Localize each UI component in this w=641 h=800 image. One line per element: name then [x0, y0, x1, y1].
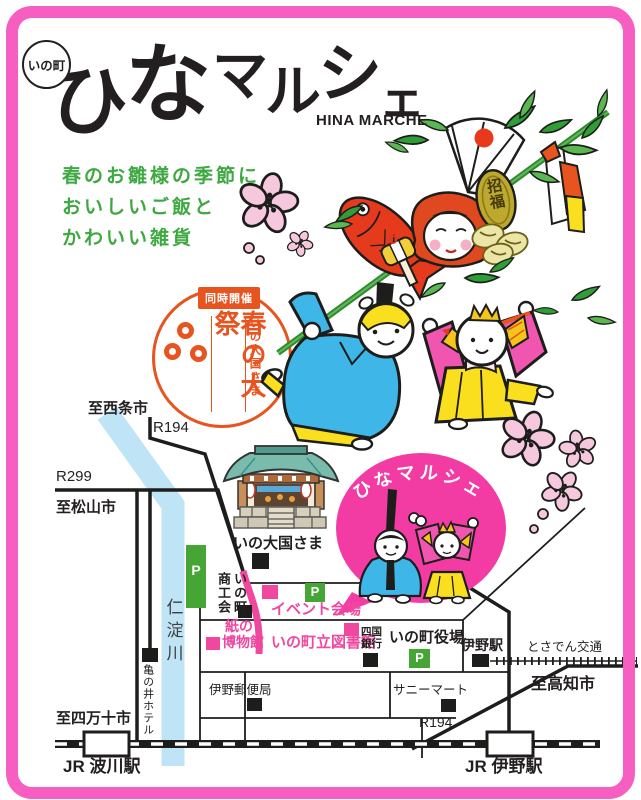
hakawa-station-box	[84, 732, 129, 756]
postoffice-marker	[247, 698, 262, 711]
title-char: マ	[212, 48, 265, 104]
paper-streamers-icon	[541, 142, 585, 232]
label-route299: R299	[56, 468, 92, 485]
label-to-shimanto: 至四万十市	[56, 710, 131, 727]
label-niyodo-river: 仁淀川	[163, 598, 183, 667]
label-bank: 四国 銀行	[361, 626, 382, 650]
poster-subtitle: HINA MARCHE	[316, 112, 428, 129]
parking-event-letter: P	[305, 585, 325, 600]
tagline: 春のお雛様の季節に おいしいご飯と かわいい雑貨	[62, 162, 260, 254]
label-town-hall: いの町役場	[389, 629, 464, 646]
sakura-flowers-right	[490, 402, 601, 533]
title-char: シ	[318, 42, 379, 106]
label-bank-line2: 銀行	[361, 638, 382, 650]
parking-townhall-letter: P	[409, 651, 430, 666]
label-sunny-mart: サニーマート	[393, 683, 468, 697]
tagline-line: かわいい雑貨	[62, 224, 260, 255]
label-to-kochi: 至高知市	[531, 676, 595, 694]
label-jr-hakawa: JR 波川駅	[63, 757, 140, 777]
hina-marche-flyer: { "colors": { "accent_orange": "#e8541f"…	[0, 0, 641, 800]
area-badge-label: いの町	[28, 55, 66, 74]
label-chamber-right: いの町	[231, 572, 246, 614]
label-event-site: イベント会場	[271, 601, 361, 618]
title-char: な	[125, 42, 208, 128]
princess-hina-doll	[423, 302, 554, 429]
paper-museum-marker	[206, 637, 220, 650]
ino-station-box	[487, 732, 533, 756]
parking-west-letter: P	[186, 562, 206, 578]
label-ino-station: 伊野駅	[461, 637, 503, 653]
label-route194: R194	[153, 419, 189, 436]
bank-marker	[363, 653, 378, 667]
label-shrine: いの大国さま	[233, 535, 323, 552]
shrine-illustration	[224, 446, 338, 528]
label-chamber-left: 商工会	[215, 572, 230, 614]
label-to-matsuyama: 至松山市	[56, 499, 116, 516]
label-jr-ino: JR 伊野駅	[465, 757, 542, 777]
label-paper-museum-1: 紙の	[225, 618, 253, 634]
label-route194-south: R194	[419, 714, 452, 730]
label-paper-museum-2: 博物館	[222, 634, 264, 650]
event-site-marker	[262, 585, 278, 599]
sunnymart-marker	[441, 699, 456, 712]
hotel-marker	[142, 648, 158, 662]
label-tosaden: とさでん交通	[527, 640, 602, 654]
label-to-saijo: 至西条市	[88, 400, 148, 417]
tagline-line: 春のお雛様の季節に	[62, 162, 260, 193]
shrine-marker	[252, 553, 269, 569]
title-char: ル	[265, 64, 318, 120]
tagline-line: おいしいご飯と	[62, 193, 260, 224]
area-badge: いの町	[22, 40, 71, 89]
label-hotel: 亀の井ホテル	[141, 664, 154, 736]
label-post-office: 伊野郵便局	[209, 683, 272, 697]
ino-eki-marker	[472, 654, 489, 667]
label-bank-line1: 四国	[361, 626, 382, 638]
hina-marche-bubble: ひなマルシェ	[336, 453, 506, 616]
